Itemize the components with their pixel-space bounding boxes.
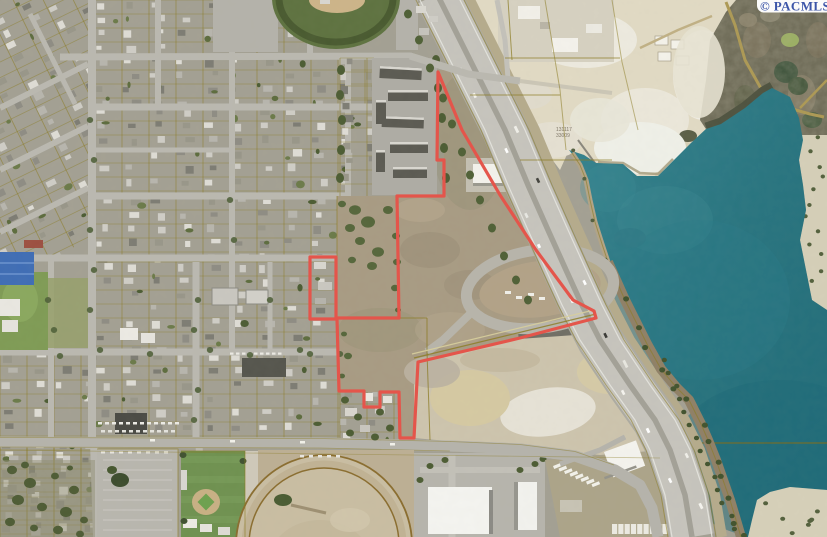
svg-text:© PACMLS: © PACMLS — [760, 0, 827, 14]
